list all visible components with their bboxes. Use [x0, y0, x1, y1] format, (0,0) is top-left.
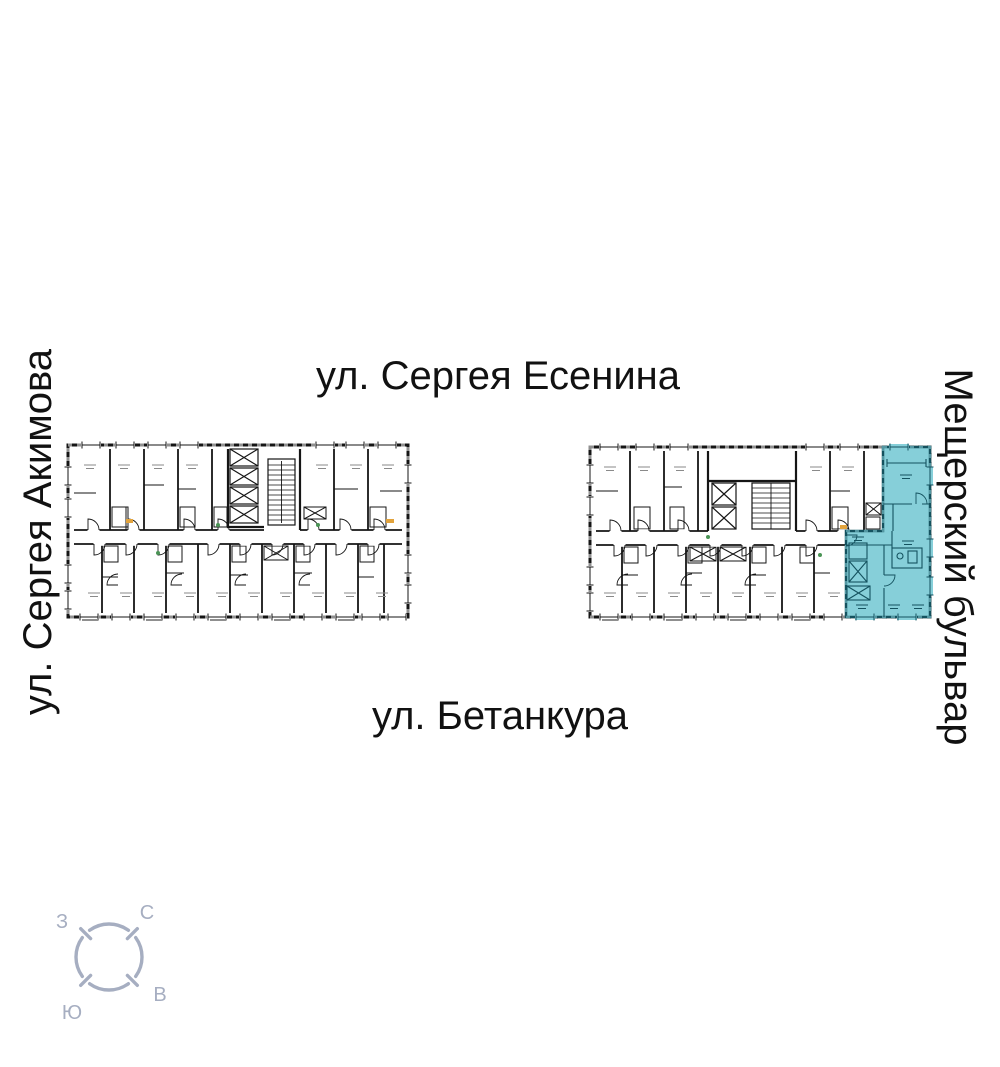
site-plan-page: ул. Сергея Есенина ул. Бетанкура ул. Сер…	[0, 0, 1000, 1067]
stove-fixtures	[840, 525, 847, 529]
compass-ring	[76, 924, 142, 990]
floorplan-svg: С З В Ю	[0, 0, 1000, 1067]
compass-north-label: С	[140, 902, 154, 924]
building-right-section	[587, 444, 934, 621]
compass-east-label: В	[153, 984, 166, 1006]
compass-south-label: Ю	[62, 1002, 82, 1024]
compass-west-label: З	[56, 911, 68, 933]
outer-wall	[68, 445, 408, 617]
building-left-section	[65, 442, 412, 621]
compass: С З В Ю	[56, 902, 167, 1024]
